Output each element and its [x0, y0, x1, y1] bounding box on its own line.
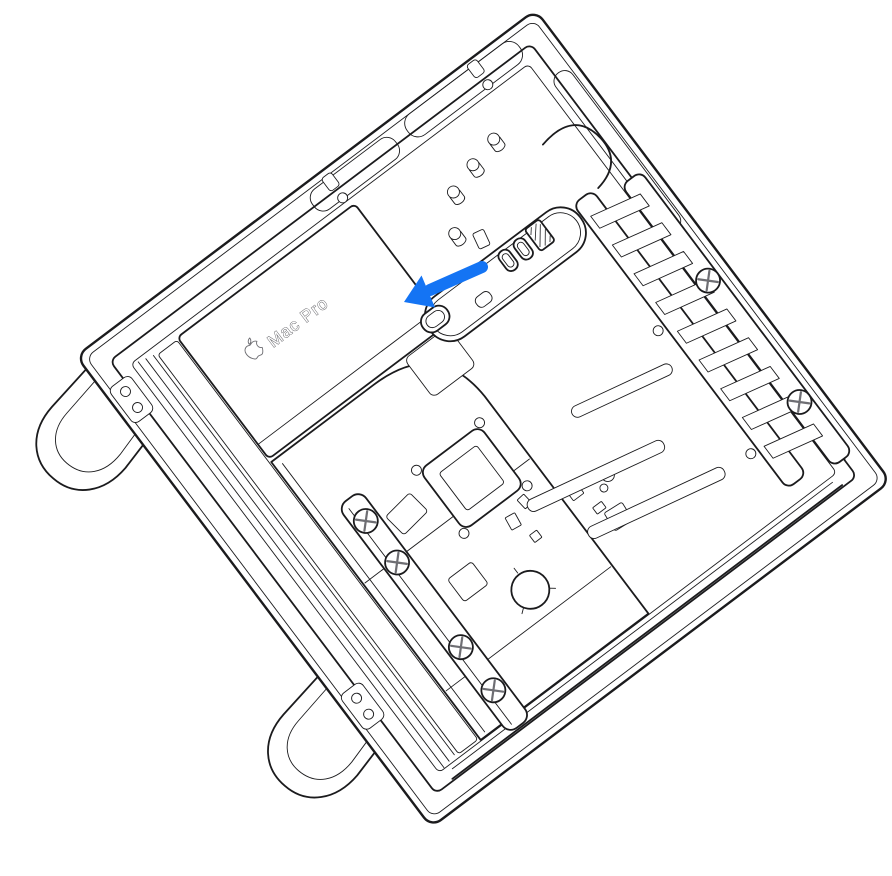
mac-pro-side-open-illustration: Mac Pro — [0, 0, 892, 876]
illustration-canvas: Mac Pro — [0, 0, 892, 876]
chassis-rotated-group: Mac Pro — [2, 10, 891, 876]
